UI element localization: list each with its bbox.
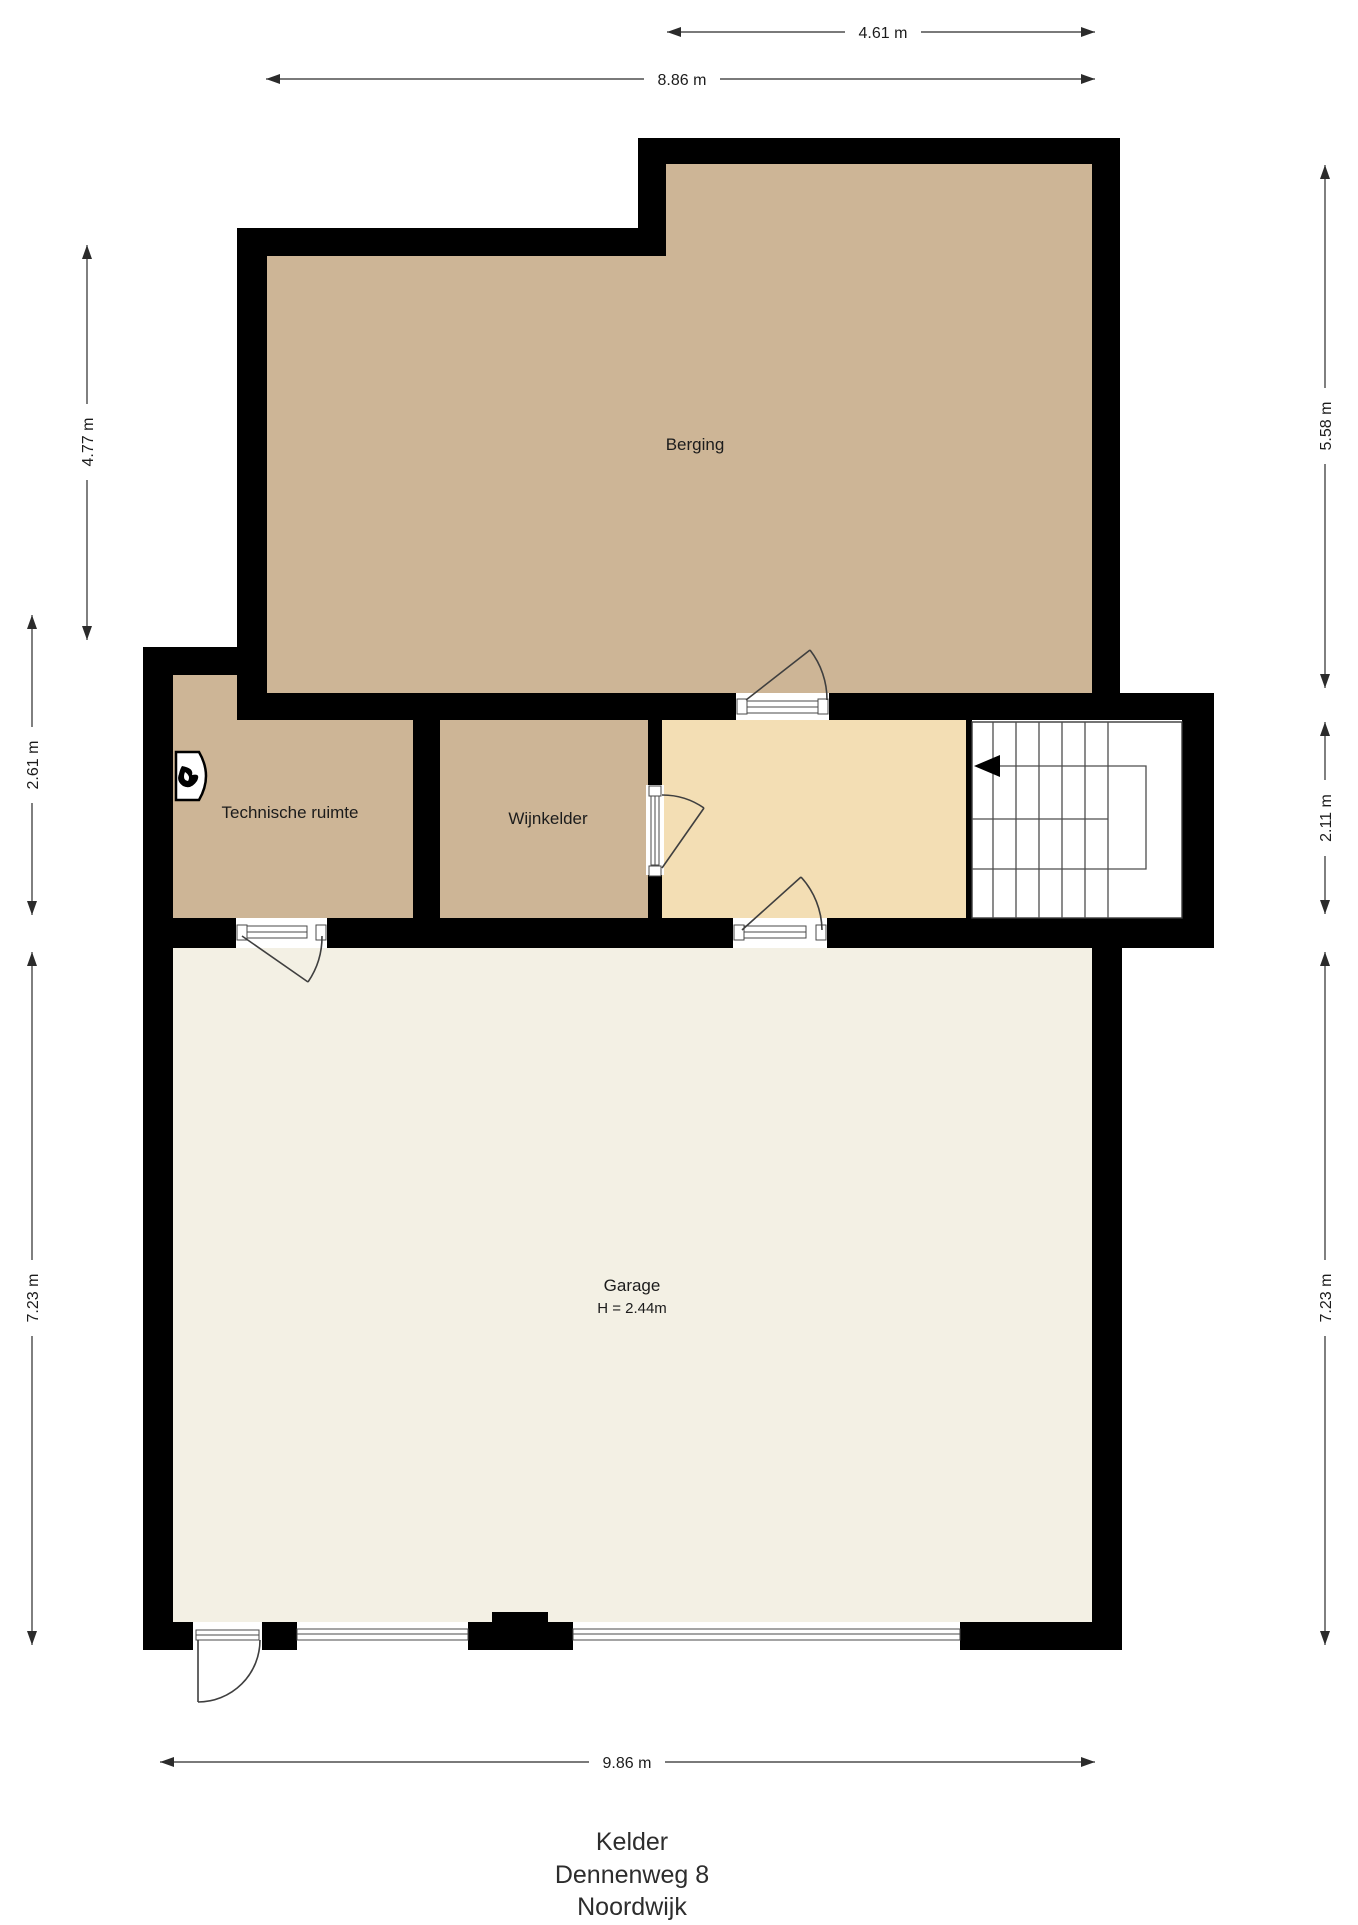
plan-title: Kelder Dennenweg 8 Noordwijk	[555, 1828, 709, 1920]
door-exterior	[193, 1622, 262, 1702]
floorplan-drawing: Berging Technische ruimte Wijnkelder Gar…	[0, 0, 1358, 1920]
room-floors	[173, 164, 1092, 1622]
title-line-floor: Kelder	[596, 1828, 668, 1856]
room-label-wijnkelder: Wijnkelder	[508, 809, 588, 828]
svg-text:4.61 m: 4.61 m	[859, 25, 908, 42]
staircase	[966, 720, 1182, 918]
svg-text:5.58 m: 5.58 m	[1318, 402, 1335, 451]
window-garage-right	[573, 1622, 960, 1650]
room-label-berging: Berging	[666, 435, 725, 454]
dimension-top-inner: 4.61 m	[667, 21, 1095, 43]
dimension-top-outer: 8.86 m	[266, 68, 1095, 90]
svg-text:4.77 m: 4.77 m	[80, 418, 97, 467]
dimension-left-lower: 7.23 m	[21, 952, 43, 1645]
title-line-street: Dennenweg 8	[555, 1861, 709, 1889]
svg-text:9.86 m: 9.86 m	[603, 1755, 652, 1772]
dimension-bottom: 9.86 m	[160, 1751, 1095, 1773]
title-line-city: Noordwijk	[577, 1893, 687, 1920]
room-floor-hall	[662, 720, 968, 918]
dimension-left-upper: 4.77 m	[76, 245, 98, 640]
dimension-right-upper: 5.58 m	[1314, 165, 1336, 688]
svg-text:7.23 m: 7.23 m	[1318, 1274, 1335, 1323]
svg-text:2.61 m: 2.61 m	[25, 741, 42, 790]
floorplan-page: Berging Technische ruimte Wijnkelder Gar…	[0, 0, 1358, 1920]
window-garage-left	[297, 1622, 468, 1650]
dimension-right-lower: 7.23 m	[1314, 952, 1336, 1645]
svg-text:8.86 m: 8.86 m	[658, 72, 707, 89]
svg-text:2.11 m: 2.11 m	[1318, 794, 1335, 842]
boiler-icon	[176, 752, 206, 800]
room-label-garage-height: H = 2.44m	[597, 1300, 667, 1317]
svg-text:7.23 m: 7.23 m	[25, 1274, 42, 1323]
room-label-garage: Garage	[604, 1276, 661, 1295]
room-label-technische-ruimte: Technische ruimte	[221, 803, 358, 822]
dimension-left-middle: 2.61 m	[21, 615, 43, 915]
dimension-right-middle: 2.11 m	[1314, 722, 1336, 914]
